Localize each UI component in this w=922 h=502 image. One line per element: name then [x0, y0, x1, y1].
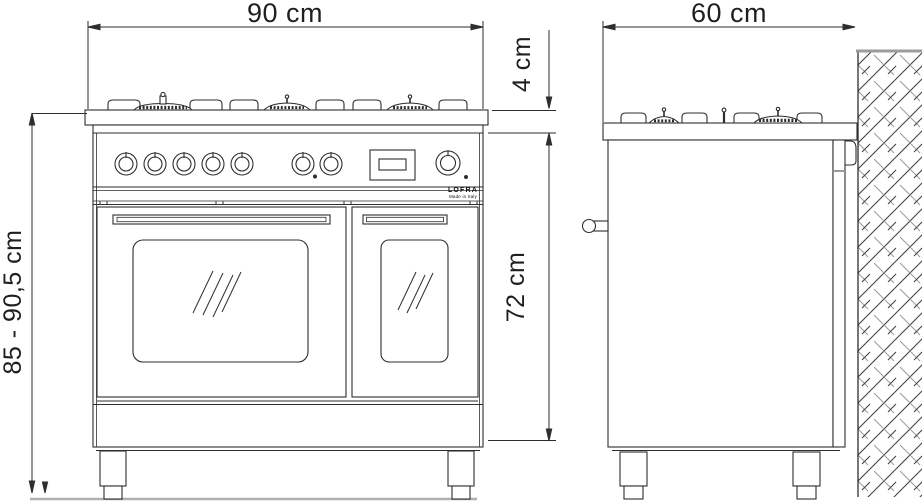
back-trim [845, 141, 856, 165]
wall-section [856, 51, 922, 497]
front-burners [108, 92, 467, 110]
side-legs [620, 452, 820, 499]
side-body [608, 140, 833, 447]
side-burners [621, 107, 822, 123]
grate-icon [190, 100, 222, 110]
indicator-light [313, 175, 317, 179]
dimension-drawing: 90 cm 60 cm 4 cm 72 cm 85 - 90,5 cm LOFR… [0, 0, 922, 502]
indicator-light [464, 175, 468, 179]
leg [100, 451, 126, 486]
igniter-tip [662, 108, 665, 111]
grate-icon [353, 100, 381, 110]
leg-foot [797, 486, 816, 499]
front-legs [100, 451, 474, 499]
grate-icon [316, 100, 344, 110]
grate-icon [439, 100, 467, 110]
burner-cap-icon [649, 117, 679, 124]
brand-tagline: Made in Italy [439, 194, 487, 199]
igniter-tip [722, 108, 726, 112]
leg-foot [624, 486, 643, 499]
grate-icon [621, 113, 646, 123]
dimension-label-front-width: 90 cm [235, 0, 335, 26]
igniter-tip [776, 107, 779, 110]
grate-icon [682, 113, 707, 123]
back-spacer [833, 140, 845, 447]
leg-foot [104, 486, 122, 499]
hob-band-side [603, 123, 857, 140]
front-view [30, 92, 488, 499]
dim-overall-height [29, 113, 87, 493]
handle-knob-icon [583, 220, 596, 233]
leg [448, 451, 474, 486]
brand-logo: LOFRA Made in Italy [439, 187, 487, 199]
dimension-label-side-depth: 60 cm [679, 0, 779, 26]
main-oven-door [97, 207, 346, 397]
leg [793, 452, 820, 486]
leg-foot [452, 486, 470, 499]
line-art [0, 0, 922, 502]
hob-band-front [85, 110, 488, 125]
dimension-label-overall-height: 85 - 90,5 cm [0, 217, 26, 387]
second-oven-door [352, 207, 478, 397]
leg [620, 452, 647, 486]
side-view [583, 107, 858, 499]
grate-icon [230, 100, 258, 110]
floor-arrow [42, 482, 47, 493]
dimension-label-body-height: 72 cm [503, 232, 529, 342]
igniter-tip [408, 95, 411, 98]
brand-name: LOFRA [439, 187, 487, 194]
dim-side-depth [603, 21, 855, 122]
dimension-label-hob-height: 4 cm [509, 19, 535, 109]
igniter-tip [161, 92, 165, 96]
side-handle [583, 220, 609, 233]
igniter-tip [285, 95, 288, 98]
igniter-icon [160, 96, 166, 104]
wall-hatch [858, 51, 922, 497]
